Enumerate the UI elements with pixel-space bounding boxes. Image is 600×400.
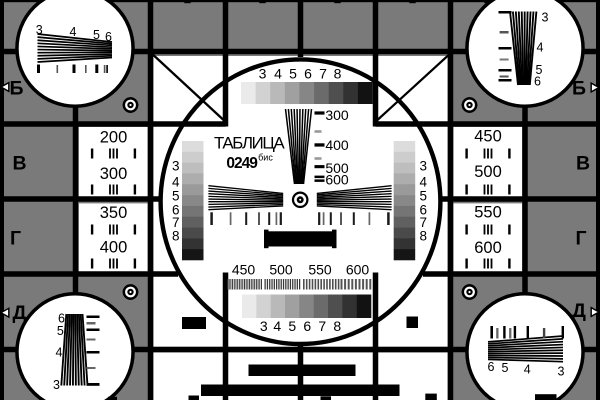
svg-text:4: 4 xyxy=(524,362,531,376)
svg-text:3: 3 xyxy=(542,11,549,25)
svg-text:7: 7 xyxy=(318,318,326,334)
svg-text:8: 8 xyxy=(334,66,342,82)
svg-text:Д: Д xyxy=(13,302,27,324)
svg-text:300: 300 xyxy=(325,107,349,123)
svg-text:6: 6 xyxy=(534,75,541,89)
svg-text:3: 3 xyxy=(259,66,267,82)
svg-text:550: 550 xyxy=(474,204,502,222)
svg-text:4: 4 xyxy=(70,25,77,39)
svg-text:300: 300 xyxy=(100,165,128,183)
svg-text:6: 6 xyxy=(303,318,311,334)
svg-text:5: 5 xyxy=(288,318,296,334)
svg-text:5: 5 xyxy=(93,28,100,42)
svg-text:4: 4 xyxy=(172,174,180,189)
svg-text:3: 3 xyxy=(420,159,428,174)
svg-text:6: 6 xyxy=(488,360,495,374)
svg-text:5: 5 xyxy=(172,188,180,203)
svg-text:350: 350 xyxy=(100,204,128,222)
svg-text:3: 3 xyxy=(558,365,565,379)
svg-text:бис: бис xyxy=(258,153,273,163)
svg-text:В: В xyxy=(576,153,590,175)
svg-text:600: 600 xyxy=(474,239,502,257)
svg-text:550: 550 xyxy=(308,262,332,278)
svg-text:450: 450 xyxy=(474,128,502,146)
svg-text:8: 8 xyxy=(172,229,180,244)
svg-text:4: 4 xyxy=(273,318,281,334)
svg-text:5: 5 xyxy=(289,66,297,82)
svg-text:0249: 0249 xyxy=(226,155,258,172)
svg-text:Г: Г xyxy=(10,228,21,250)
svg-text:5: 5 xyxy=(420,188,428,203)
svg-text:400: 400 xyxy=(100,239,128,257)
svg-text:Г: Г xyxy=(575,228,586,250)
svg-text:500: 500 xyxy=(474,163,502,181)
svg-text:6: 6 xyxy=(304,66,312,82)
svg-text:6: 6 xyxy=(105,30,112,44)
svg-text:600: 600 xyxy=(346,262,370,278)
svg-text:5: 5 xyxy=(502,361,509,375)
svg-text:600: 600 xyxy=(325,171,349,187)
svg-text:200: 200 xyxy=(100,129,128,147)
svg-text:4: 4 xyxy=(420,174,428,189)
svg-text:3: 3 xyxy=(172,159,180,174)
svg-text:450: 450 xyxy=(232,262,256,278)
svg-text:7: 7 xyxy=(319,66,327,82)
svg-text:4: 4 xyxy=(56,345,63,359)
svg-text:Д: Д xyxy=(572,300,586,322)
svg-text:3: 3 xyxy=(36,23,43,37)
svg-text:5: 5 xyxy=(57,324,64,338)
svg-text:3: 3 xyxy=(260,318,268,334)
svg-text:В: В xyxy=(12,153,26,175)
svg-text:Б: Б xyxy=(9,78,23,100)
svg-text:4: 4 xyxy=(537,41,544,55)
svg-text:500: 500 xyxy=(269,262,293,278)
svg-text:8: 8 xyxy=(420,229,428,244)
svg-text:8: 8 xyxy=(333,318,341,334)
svg-text:400: 400 xyxy=(325,137,349,153)
svg-text:4: 4 xyxy=(274,66,282,82)
svg-text:ТАБЛИЦА: ТАБЛИЦА xyxy=(214,134,286,153)
svg-text:Б: Б xyxy=(572,78,586,100)
svg-text:3: 3 xyxy=(53,378,60,392)
